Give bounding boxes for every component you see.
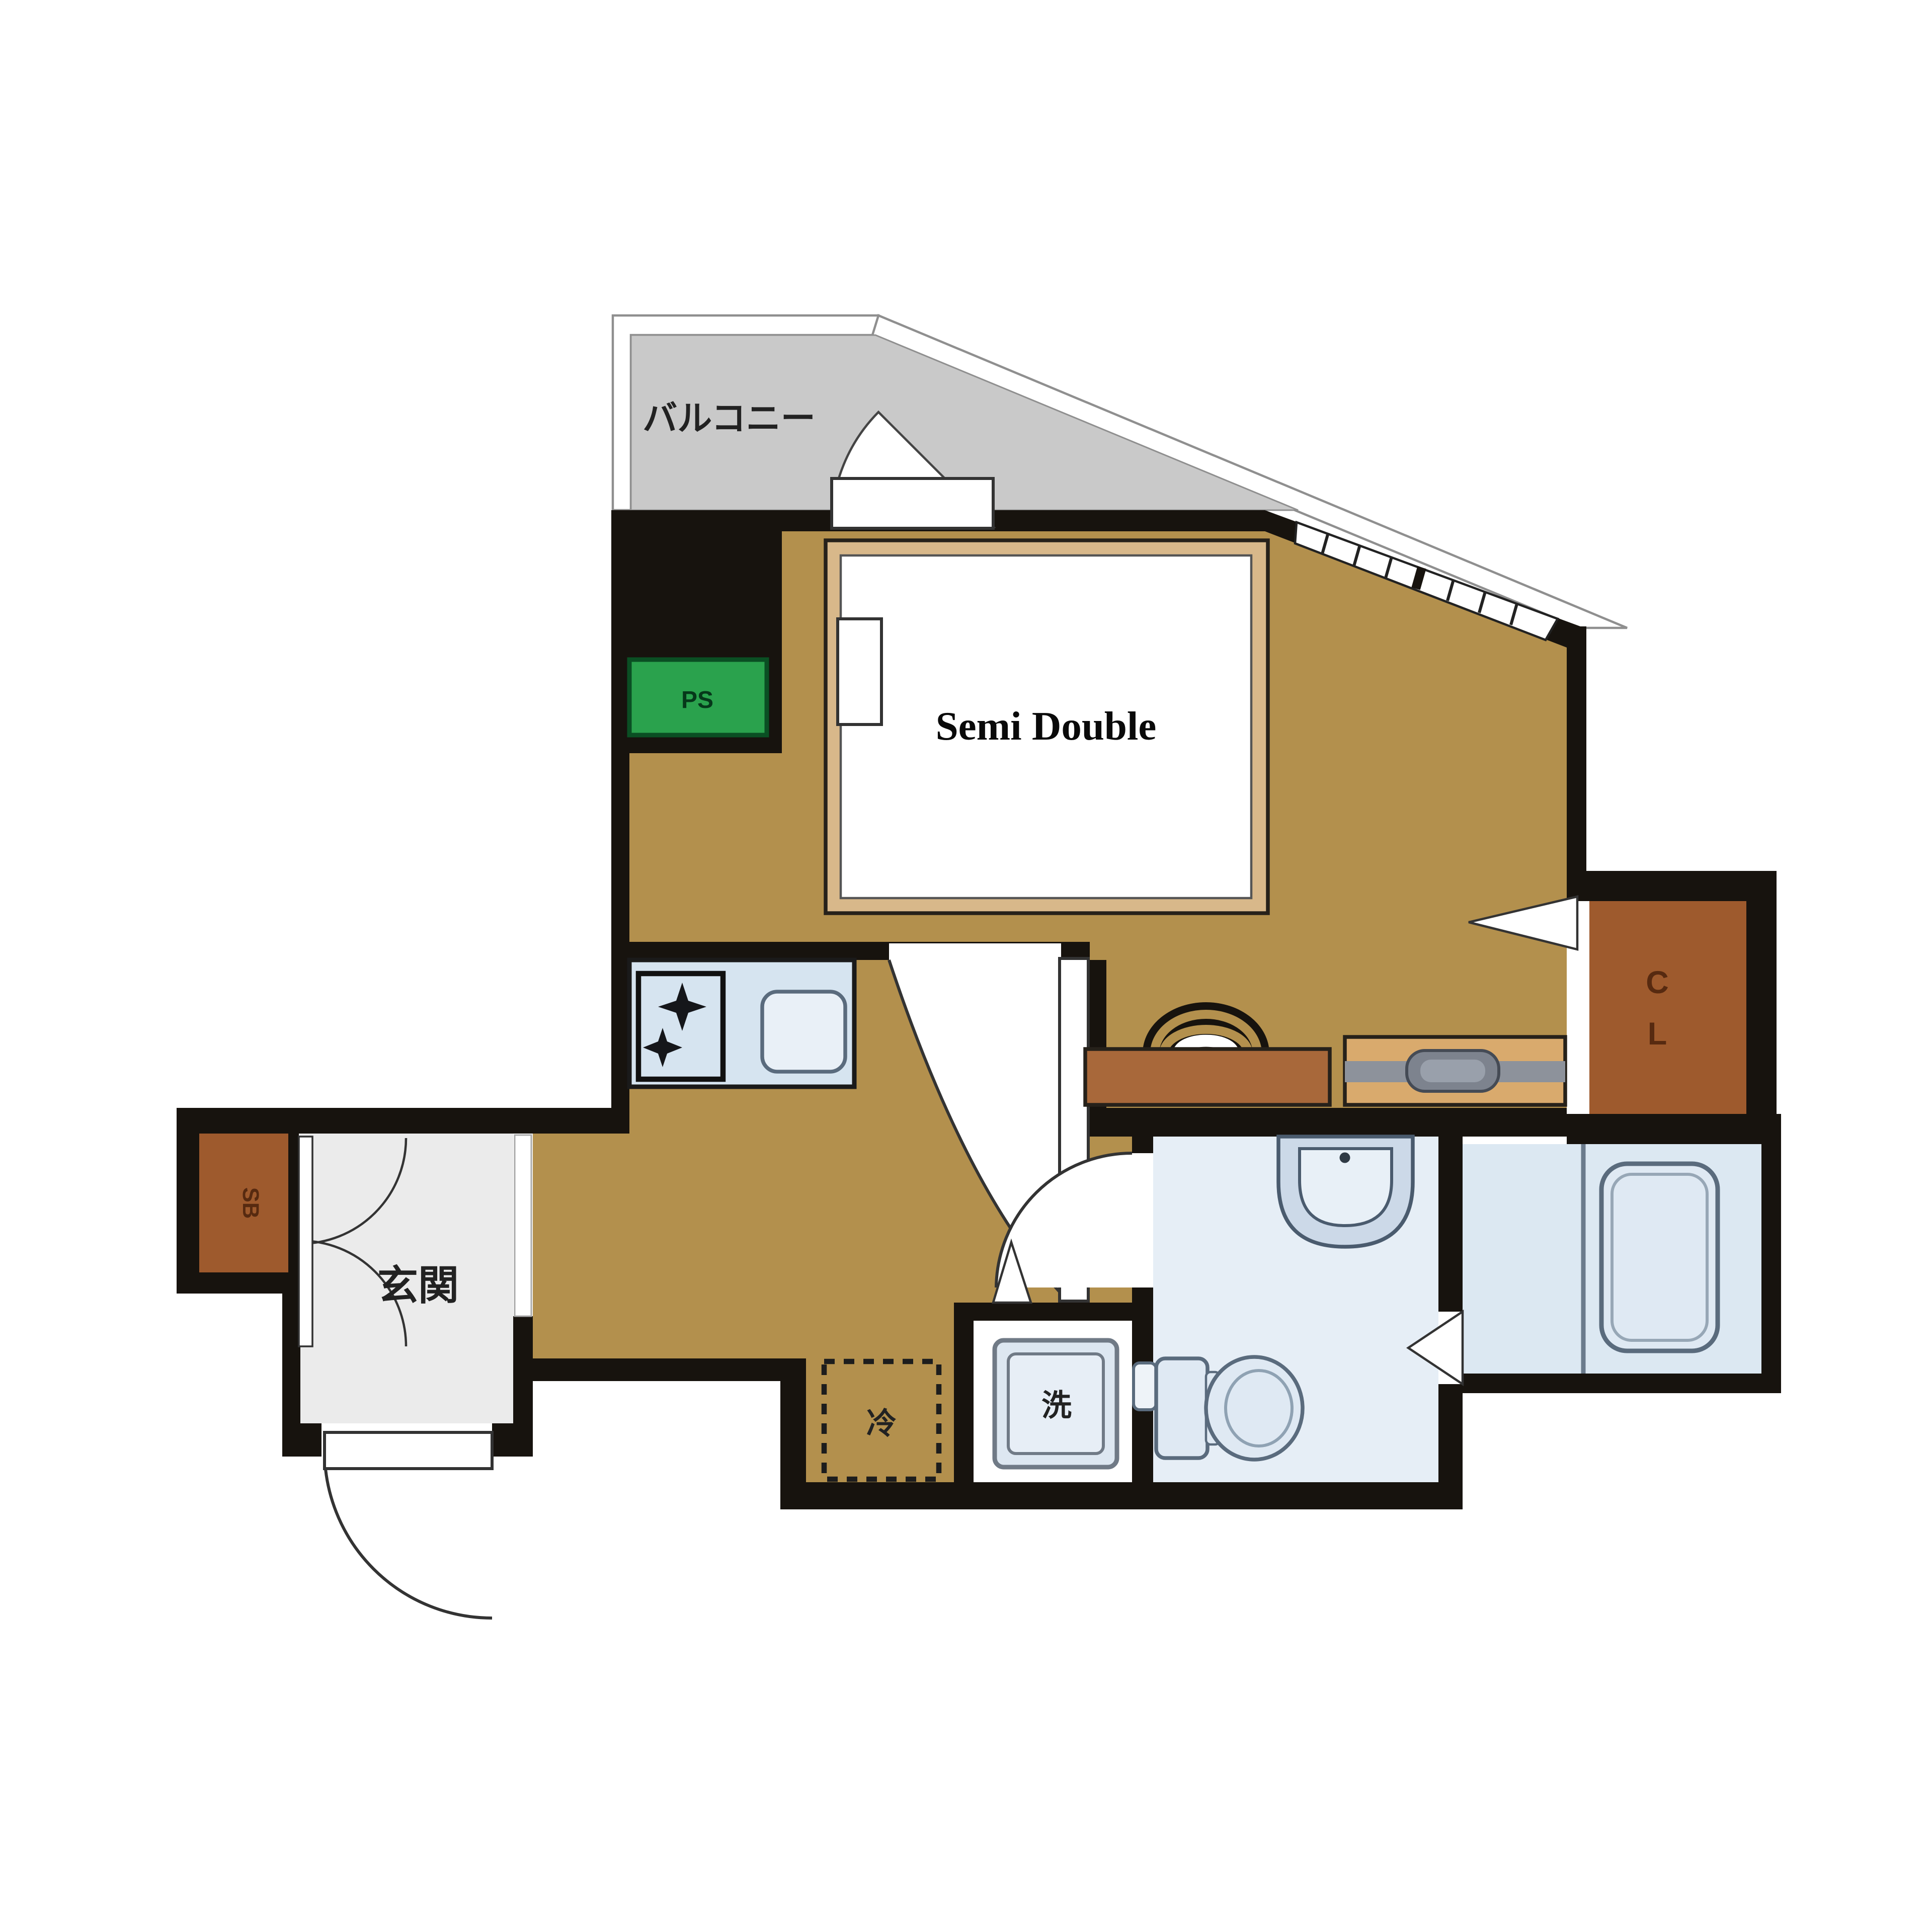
fridge-label: 冷 <box>866 1407 897 1440</box>
shoebox-label: SB <box>238 1187 264 1219</box>
floorplan-svg: 冷 洗 Semi Double <box>0 0 1932 1932</box>
washbasin <box>1278 1137 1413 1247</box>
wall-corridor-bottom <box>533 1358 806 1381</box>
closet-label-l: L <box>1648 1016 1667 1052</box>
wall-left <box>611 510 629 1108</box>
balcony-door-leaf <box>832 478 993 528</box>
opening-lavatory <box>1132 1153 1153 1287</box>
shoebox-door-leaf <box>299 1137 312 1346</box>
wall-closet-top <box>1567 871 1777 901</box>
wall-bottom-outer <box>780 1482 1463 1509</box>
bed: Semi Double <box>826 540 1268 913</box>
front-door-arc <box>325 1451 492 1618</box>
pipe-space: PS <box>629 660 767 735</box>
wall-alcove-left <box>954 1315 974 1482</box>
wall-closet-right <box>1746 871 1777 1144</box>
wall-alcove-top <box>954 1303 1132 1321</box>
wall-closet-bottom <box>1567 1114 1781 1144</box>
shoebox-divider <box>288 1134 299 1272</box>
toilet-lever <box>1134 1363 1156 1410</box>
wall-mainroom-bottom <box>1087 1108 1586 1137</box>
closet-floor <box>1589 901 1746 1114</box>
washbasin-faucet <box>1340 1153 1350 1163</box>
wall-shoebox-bottom <box>177 1272 300 1294</box>
kitchen-sink <box>762 992 845 1072</box>
bed-pillow <box>838 619 881 725</box>
wall-bath-right <box>1761 1114 1781 1393</box>
ps-label: PS <box>681 687 713 713</box>
washer: 洗 <box>995 1340 1117 1467</box>
bathtub <box>1601 1164 1718 1351</box>
kitchen <box>629 960 854 1087</box>
entrance-label: 玄関 <box>377 1263 459 1309</box>
balcony-label: バルコニー <box>642 399 816 438</box>
toilet <box>1134 1357 1303 1460</box>
dresser <box>1345 1037 1565 1105</box>
washer-label: 洗 <box>1041 1389 1072 1422</box>
wall-right-upper <box>1567 626 1586 871</box>
bed-label: Semi Double <box>936 703 1157 749</box>
wall-entrance-top <box>177 1108 629 1134</box>
wall-bath-bottom <box>1438 1374 1781 1393</box>
desk <box>1085 1049 1330 1105</box>
wall-entrance-right <box>513 1316 533 1423</box>
window-center-mullion <box>1416 568 1422 589</box>
front-door-leaf <box>325 1432 492 1469</box>
opening-mainroom-door <box>889 943 1061 961</box>
entrance-step-edge <box>515 1135 531 1316</box>
floorplan-page: 冷 洗 Semi Double <box>0 0 1932 1932</box>
bathtub-outer <box>1601 1164 1718 1351</box>
closet-label-c: C <box>1646 965 1668 1000</box>
wall-shoebox-left <box>177 1108 199 1294</box>
toilet-tank <box>1156 1358 1207 1458</box>
